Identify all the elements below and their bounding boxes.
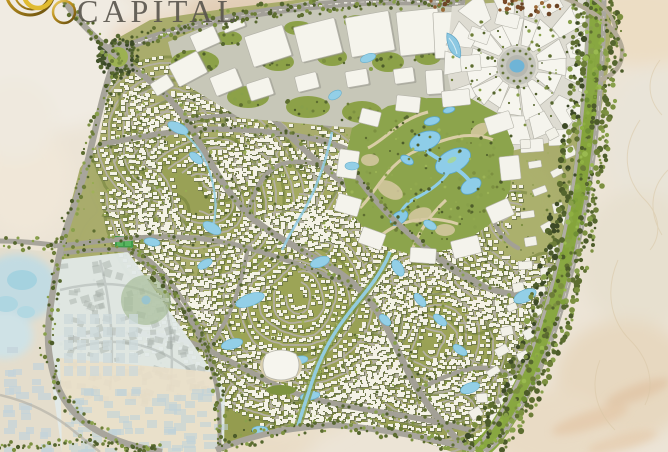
svg-text:CAPITAL: CAPITAL bbox=[77, 0, 241, 29]
